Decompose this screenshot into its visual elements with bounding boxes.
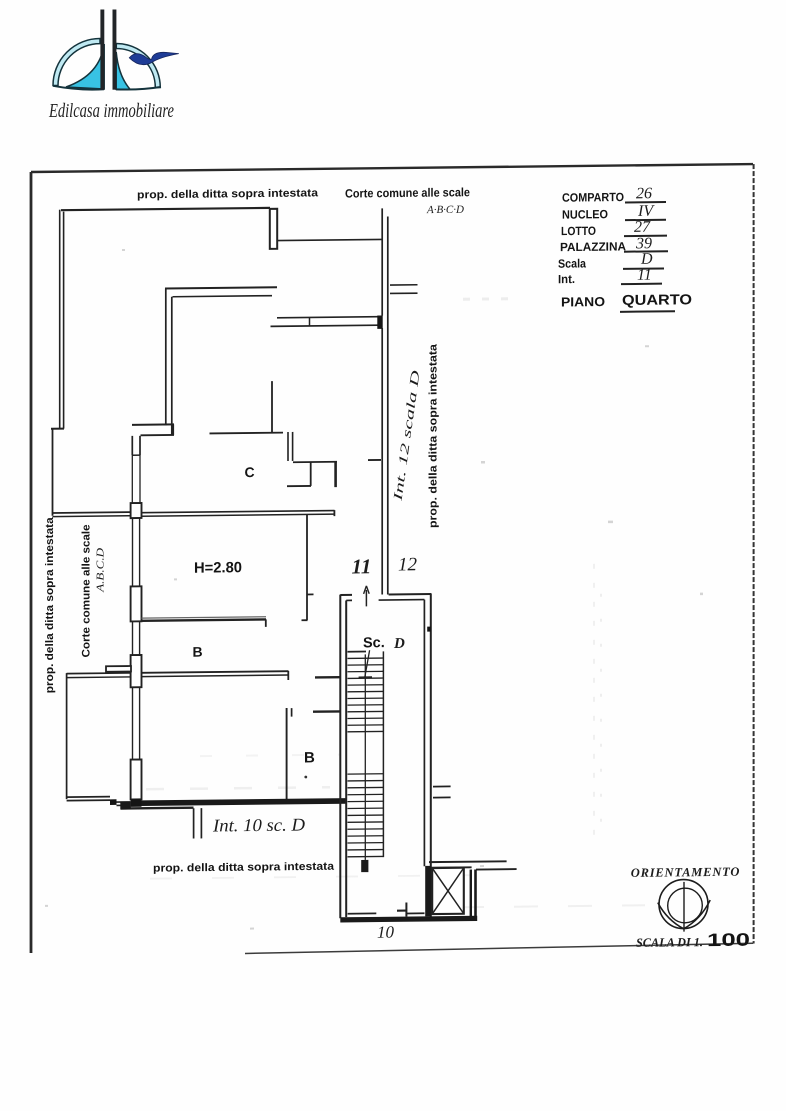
svg-text:Edilcasa immobiliare: Edilcasa immobiliare — [48, 100, 174, 122]
svg-text:100: 100 — [707, 930, 750, 950]
svg-text:11: 11 — [352, 554, 372, 578]
svg-text:PALAZZINA: PALAZZINA — [560, 239, 626, 254]
svg-text:D: D — [640, 251, 653, 268]
svg-text:C: C — [245, 464, 255, 480]
svg-text:A·B·C·D: A·B·C·D — [426, 204, 464, 216]
svg-text:prop. della ditta sopra intest: prop. della ditta sopra intestata — [428, 343, 440, 528]
svg-text:B: B — [304, 749, 315, 766]
svg-text:SCALA DI 1.: SCALA DI 1. — [636, 935, 703, 950]
svg-text:ORIENTAMENTO: ORIENTAMENTO — [631, 865, 740, 880]
svg-text:prop. della ditta sopra intest: prop. della ditta sopra intestata — [153, 861, 335, 875]
svg-text:Int.: Int. — [558, 272, 575, 286]
svg-text:PIANO: PIANO — [561, 294, 605, 309]
svg-text:Scala: Scala — [558, 256, 586, 270]
svg-text:Corte comune alle scale: Corte comune alle scale — [81, 524, 93, 657]
svg-text:IV: IV — [637, 203, 655, 220]
svg-text:Sc.: Sc. — [363, 635, 385, 651]
svg-text:27: 27 — [634, 219, 651, 236]
svg-text:Corte comune alle scale: Corte comune alle scale — [345, 185, 470, 200]
svg-text:prop. della ditta sopra intest: prop. della ditta sopra intestata — [137, 187, 319, 201]
svg-text:D: D — [393, 636, 405, 652]
svg-text:26: 26 — [636, 185, 652, 202]
svg-text:B: B — [193, 644, 203, 660]
svg-text:12: 12 — [398, 554, 417, 575]
svg-text:Int. 12 scala D: Int. 12 scala D — [390, 370, 422, 503]
svg-text:QUARTO: QUARTO — [622, 292, 692, 309]
svg-text:COMPARTO: COMPARTO — [562, 190, 624, 205]
svg-text:10: 10 — [377, 923, 394, 942]
svg-text:A.B.C.D: A.B.C.D — [96, 547, 107, 593]
svg-text:Int. 10 sc. D: Int. 10 sc. D — [212, 814, 305, 835]
svg-text:prop. della ditta sopra intest: prop. della ditta sopra intestata — [44, 516, 56, 693]
svg-text:LOTTO: LOTTO — [561, 224, 596, 238]
svg-text:NUCLEO: NUCLEO — [562, 207, 608, 222]
svg-text:11: 11 — [637, 267, 652, 284]
svg-text:H=2.80: H=2.80 — [194, 559, 242, 577]
